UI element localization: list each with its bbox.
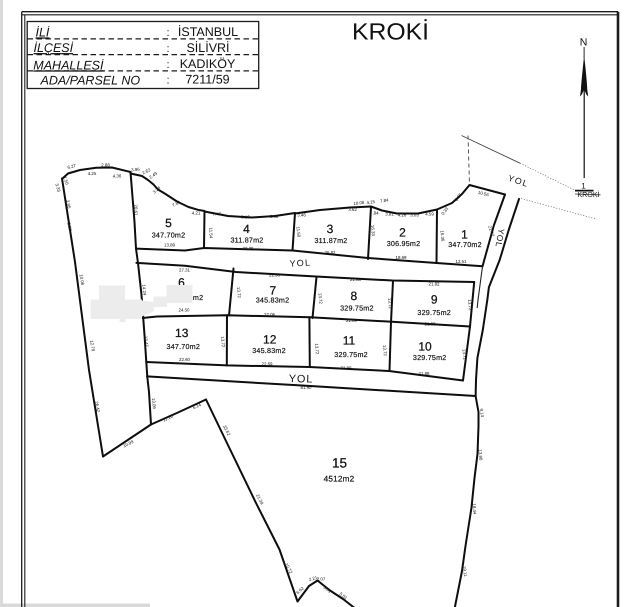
svg-text:13.72: 13.72: [467, 299, 473, 311]
svg-text:329.75m2: 329.75m2: [340, 304, 374, 313]
svg-text:329.75m2: 329.75m2: [413, 353, 447, 362]
svg-text:13.72: 13.72: [318, 293, 324, 305]
svg-text:20.61: 20.61: [133, 204, 139, 216]
svg-text:24.50: 24.50: [179, 308, 191, 313]
svg-text:4.59: 4.59: [425, 212, 434, 217]
svg-text:KADIKÖY: KADIKÖY: [180, 57, 236, 71]
svg-text:13.06: 13.06: [151, 398, 157, 410]
svg-text::: :: [167, 27, 170, 39]
svg-text:8: 8: [350, 289, 357, 303]
svg-text:21.88: 21.88: [350, 277, 362, 282]
svg-text:4.25: 4.25: [88, 171, 97, 176]
svg-text:13.72: 13.72: [382, 345, 388, 357]
svg-text:3.46: 3.46: [297, 213, 306, 218]
svg-text:6.38: 6.38: [270, 214, 279, 219]
svg-text:İSTANBUL: İSTANBUL: [178, 25, 238, 39]
svg-text:4.26: 4.26: [398, 213, 407, 218]
svg-text:311.87m2: 311.87m2: [314, 236, 347, 245]
svg-text:22.06: 22.06: [264, 312, 276, 317]
svg-text:13: 13: [175, 326, 189, 340]
svg-text:7.46: 7.46: [213, 212, 222, 217]
svg-text:MAHALLESİ: MAHALLESİ: [33, 58, 104, 72]
svg-text:3.62: 3.62: [348, 207, 357, 212]
svg-text:21.82: 21.82: [429, 282, 441, 287]
svg-text:13.72: 13.72: [387, 298, 393, 310]
svg-text:21.88: 21.88: [419, 371, 431, 376]
svg-text:347.70m2: 347.70m2: [152, 231, 186, 240]
svg-text:16.36: 16.36: [440, 230, 446, 242]
svg-text:3.03: 3.03: [410, 213, 419, 218]
svg-text:YOL: YOL: [289, 257, 311, 268]
svg-text:11.54: 11.54: [208, 227, 214, 238]
svg-text:İLİ: İLİ: [36, 25, 50, 39]
svg-text:KROKİ: KROKİ: [352, 19, 429, 45]
svg-text:İLÇESİ: İLÇESİ: [34, 41, 74, 55]
svg-text:345.83m2: 345.83m2: [252, 346, 286, 355]
svg-text:4.21: 4.21: [192, 211, 201, 216]
svg-text::: :: [167, 43, 170, 55]
svg-text:12.51: 12.51: [456, 259, 468, 264]
svg-text:16.33: 16.33: [370, 225, 376, 237]
svg-text:8.19: 8.19: [241, 215, 250, 220]
svg-text:23.38: 23.38: [243, 246, 255, 251]
svg-text:2.88: 2.88: [101, 163, 110, 168]
svg-text:13.72: 13.72: [462, 349, 468, 361]
svg-text:4512m2: 4512m2: [324, 475, 355, 484]
svg-text:22.96: 22.96: [269, 273, 281, 278]
svg-text:7211/59: 7211/59: [185, 73, 229, 87]
svg-text:13.89: 13.89: [164, 243, 176, 248]
svg-text:21.88: 21.88: [425, 322, 437, 327]
svg-text::: :: [167, 75, 170, 87]
svg-text:21.89: 21.89: [346, 318, 358, 323]
svg-text:345.83m2: 345.83m2: [256, 296, 290, 305]
svg-text:.84: .84: [372, 211, 379, 216]
svg-text:2: 2: [399, 226, 406, 240]
svg-text:11: 11: [343, 334, 356, 348]
svg-text:11.50: 11.50: [296, 226, 302, 238]
svg-text:13.72: 13.72: [314, 343, 320, 355]
svg-text:12: 12: [263, 332, 277, 346]
svg-text:YOL: YOL: [289, 373, 314, 386]
svg-text:13.72: 13.72: [236, 287, 242, 299]
svg-text:18.44: 18.44: [472, 503, 478, 515]
svg-text:18.69: 18.69: [396, 255, 408, 260]
svg-text:5: 5: [165, 216, 172, 230]
svg-text:13.72: 13.72: [220, 336, 226, 348]
svg-text:306.95m2: 306.95m2: [387, 239, 421, 248]
svg-text:22.69: 22.69: [262, 362, 274, 367]
svg-text:9: 9: [431, 293, 438, 307]
svg-text:311.87m2: 311.87m2: [230, 236, 263, 245]
svg-text::: :: [167, 59, 170, 71]
svg-text:14.24: 14.24: [141, 284, 147, 296]
svg-text:13.47: 13.47: [143, 336, 149, 348]
svg-text:ADA/PARSEL NO: ADA/PARSEL NO: [40, 73, 141, 87]
svg-text:27.31: 27.31: [179, 268, 191, 273]
svg-text:2.07: 2.07: [317, 577, 326, 582]
svg-text:26.82: 26.82: [325, 250, 337, 255]
svg-text:3: 3: [327, 222, 334, 236]
svg-text:3.81: 3.81: [385, 212, 394, 217]
svg-text:3.96: 3.96: [131, 167, 141, 173]
svg-text:SİLİVRİ: SİLİVRİ: [186, 41, 229, 55]
svg-text:329.75m2: 329.75m2: [334, 350, 368, 359]
svg-text:22.60: 22.60: [179, 357, 191, 362]
svg-text:81.90: 81.90: [301, 385, 313, 390]
svg-text:4: 4: [243, 222, 250, 236]
svg-text:4.36: 4.36: [113, 174, 122, 179]
svg-text:347.70m2: 347.70m2: [167, 342, 201, 351]
svg-text:13.90: 13.90: [478, 449, 484, 461]
svg-text:329.75m2: 329.75m2: [417, 308, 451, 317]
svg-text:21.89: 21.89: [341, 366, 353, 371]
svg-text:N: N: [580, 37, 588, 49]
svg-text:15: 15: [332, 456, 347, 471]
svg-text:10: 10: [418, 340, 432, 354]
svg-text:347.70m2: 347.70m2: [448, 240, 482, 249]
